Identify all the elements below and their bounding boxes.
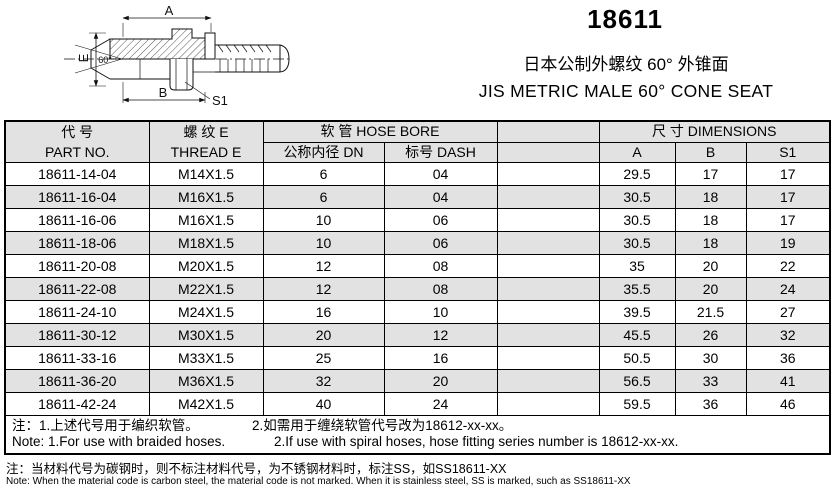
dim-a-cell: 30.5 xyxy=(599,186,675,209)
footnote-english: Note: When the material code is carbon s… xyxy=(6,476,631,487)
ring xyxy=(205,33,215,59)
dim-s1-label: S1 xyxy=(212,93,228,108)
dim-b-cell: 18 xyxy=(675,186,746,209)
col-header-dash: 标号 DASH xyxy=(384,142,497,163)
dash-cell: 06 xyxy=(384,209,497,232)
col-header-thread-cn: 螺 纹 E xyxy=(150,122,263,142)
dash-cell: 20 xyxy=(384,370,497,393)
dn-cell: 40 xyxy=(263,393,384,416)
blank-cell xyxy=(497,370,599,393)
dash-cell: 10 xyxy=(384,301,497,324)
note-row: 注：1.上述代号用于编织软管。 2.如需用于缠绕软管代号改为18612-xx-x… xyxy=(5,416,830,455)
note-en-1: Note: 1.For use with braided hoses. xyxy=(12,434,274,450)
thread-cell: M22X1.5 xyxy=(149,278,263,301)
blank-cell xyxy=(497,255,599,278)
table-row: 18611-36-20M36X1.5322056.53341 xyxy=(5,370,830,393)
col-header-blank-top xyxy=(497,121,599,142)
table-row: 18611-16-06M16X1.5100630.51817 xyxy=(5,209,830,232)
dash-cell: 04 xyxy=(384,163,497,186)
blank-cell xyxy=(497,163,599,186)
dim-a-cell: 50.5 xyxy=(599,347,675,370)
spec-table-header: 代 号 PART NO. 螺 纹 E THREAD E 软 管 HOSE BOR… xyxy=(5,121,830,163)
col-header-dimensions: 尺 寸 DIMENSIONS xyxy=(599,121,830,142)
thread-cell: M42X1.5 xyxy=(149,393,263,416)
dn-cell: 6 xyxy=(263,163,384,186)
table-row: 18611-22-08M22X1.5120835.52024 xyxy=(5,278,830,301)
table-row: 18611-42-24M42X1.5402459.53646 xyxy=(5,393,830,416)
blank-cell xyxy=(497,186,599,209)
blank-cell xyxy=(497,393,599,416)
table-row: 18611-18-06M18X1.5100630.51819 xyxy=(5,232,830,255)
table-row: 18611-16-04M16X1.560430.51817 xyxy=(5,186,830,209)
col-header-blank-bottom xyxy=(497,142,599,163)
thread-cell: M16X1.5 xyxy=(149,186,263,209)
table-row: 18611-20-08M20X1.51208352022 xyxy=(5,255,830,278)
dim-b-cell: 18 xyxy=(675,232,746,255)
dim-s1-cell: 46 xyxy=(746,393,830,416)
part-no-cell: 18611-36-20 xyxy=(5,370,149,393)
thread-cell: M24X1.5 xyxy=(149,301,263,324)
dash-cell: 16 xyxy=(384,347,497,370)
blank-cell xyxy=(497,209,599,232)
dim-s1-cell: 32 xyxy=(746,324,830,347)
spec-table-body: 18611-14-04M14X1.560429.5171718611-16-04… xyxy=(5,163,830,416)
col-header-part-no: 代 号 PART NO. xyxy=(5,121,149,163)
blank-cell xyxy=(497,232,599,255)
dim-b-cell: 17 xyxy=(675,163,746,186)
dim-a-cell: 56.5 xyxy=(599,370,675,393)
dim-s1-cell: 17 xyxy=(746,186,830,209)
col-header-dim-s1: S1 xyxy=(746,142,830,163)
dash-cell: 12 xyxy=(384,324,497,347)
dash-cell: 24 xyxy=(384,393,497,416)
table-row: 18611-24-10M24X1.5161039.521.527 xyxy=(5,301,830,324)
col-header-thread: 螺 纹 E THREAD E xyxy=(149,121,263,163)
subtitle-chinese: 日本公制外螺纹 60° 外锥面 xyxy=(420,50,832,75)
dim-a-cell: 39.5 xyxy=(599,301,675,324)
dim-s1-cell: 24 xyxy=(746,278,830,301)
part-no-cell: 18611-33-16 xyxy=(5,347,149,370)
part-no-cell: 18611-20-08 xyxy=(5,255,149,278)
thread-cell: M36X1.5 xyxy=(149,370,263,393)
thread-section xyxy=(110,29,205,59)
dim-e-label: E xyxy=(76,53,91,62)
series-code-title: 18611 xyxy=(420,4,830,35)
col-header-dn: 公称内径 DN xyxy=(263,142,384,163)
dim-s1-cell: 17 xyxy=(746,209,830,232)
dim-b-cell: 18 xyxy=(675,209,746,232)
dim-b-cell: 36 xyxy=(675,393,746,416)
dash-cell: 08 xyxy=(384,255,497,278)
dash-cell: 06 xyxy=(384,232,497,255)
thread-cell: M20X1.5 xyxy=(149,255,263,278)
dn-cell: 25 xyxy=(263,347,384,370)
dim-b-cell: 26 xyxy=(675,324,746,347)
col-header-part-no-en: PART NO. xyxy=(6,142,149,162)
dim-s1-cell: 36 xyxy=(746,347,830,370)
dim-b-cell: 20 xyxy=(675,255,746,278)
dim-a-cell: 30.5 xyxy=(599,232,675,255)
fitting-technical-drawing: A E 60° B S1 xyxy=(30,2,296,121)
note-cn-2: 2.如需用于缠绕软管代号改为18612-xx-xx。 xyxy=(252,418,512,434)
col-header-dim-a: A xyxy=(599,142,675,163)
spec-table-notes: 注：1.上述代号用于编织软管。 2.如需用于缠绕软管代号改为18612-xx-x… xyxy=(5,416,830,455)
blank-cell xyxy=(497,347,599,370)
dn-cell: 6 xyxy=(263,186,384,209)
col-header-thread-en: THREAD E xyxy=(150,142,263,162)
part-no-cell: 18611-16-04 xyxy=(5,186,149,209)
col-header-hose-bore: 软 管 HOSE BORE xyxy=(263,121,497,142)
dn-cell: 10 xyxy=(263,232,384,255)
part-no-cell: 18611-24-10 xyxy=(5,301,149,324)
dash-cell: 04 xyxy=(384,186,497,209)
dim-a-cell: 29.5 xyxy=(599,163,675,186)
catalog-page: { "page": { "series_code": "18611", "sub… xyxy=(0,0,833,495)
dim-a-cell: 35.5 xyxy=(599,278,675,301)
dn-cell: 20 xyxy=(263,324,384,347)
note-line-en: Note: 1.For use with braided hoses. 2.If… xyxy=(12,434,829,450)
table-row: 18611-14-04M14X1.560429.51717 xyxy=(5,163,830,186)
part-no-cell: 18611-22-08 xyxy=(5,278,149,301)
fitting-drawing-svg: A E 60° B S1 xyxy=(30,2,296,116)
note-cn-1: 注：1.上述代号用于编织软管。 xyxy=(12,418,252,434)
dim-a-label: A xyxy=(165,3,174,18)
thread-cell: M16X1.5 xyxy=(149,209,263,232)
dim-a-cell: 59.5 xyxy=(599,393,675,416)
dim-a-cell: 30.5 xyxy=(599,209,675,232)
dash-cell: 08 xyxy=(384,278,497,301)
part-no-cell: 18611-42-24 xyxy=(5,393,149,416)
table-row: 18611-30-12M30X1.5201245.52632 xyxy=(5,324,830,347)
part-no-cell: 18611-16-06 xyxy=(5,209,149,232)
dim-b-cell: 30 xyxy=(675,347,746,370)
dim-b-label: B xyxy=(159,85,168,100)
dim-s1-cell: 41 xyxy=(746,370,830,393)
dim-s1-cell: 27 xyxy=(746,301,830,324)
dim-s1-cell: 22 xyxy=(746,255,830,278)
dim-s1-cell: 19 xyxy=(746,232,830,255)
table-row: 18611-33-16M33X1.5251650.53036 xyxy=(5,347,830,370)
part-no-cell: 18611-30-12 xyxy=(5,324,149,347)
part-no-cell: 18611-14-04 xyxy=(5,163,149,186)
thread-cell: M18X1.5 xyxy=(149,232,263,255)
spec-table: 代 号 PART NO. 螺 纹 E THREAD E 软 管 HOSE BOR… xyxy=(4,120,831,455)
thread-cell: M33X1.5 xyxy=(149,347,263,370)
dim-b-cell: 20 xyxy=(675,278,746,301)
note-en-2: 2.If use with spiral hoses, hose fitting… xyxy=(274,434,678,450)
dn-cell: 16 xyxy=(263,301,384,324)
dn-cell: 32 xyxy=(263,370,384,393)
dn-cell: 12 xyxy=(263,278,384,301)
blank-cell xyxy=(497,278,599,301)
subtitle-english: JIS METRIC MALE 60° CONE SEAT xyxy=(420,81,832,102)
dim-a-cell: 35 xyxy=(599,255,675,278)
dim-b-cell: 33 xyxy=(675,370,746,393)
dim-b-cell: 21.5 xyxy=(675,301,746,324)
dim-a-cell: 45.5 xyxy=(599,324,675,347)
dn-cell: 10 xyxy=(263,209,384,232)
col-header-dim-b: B xyxy=(675,142,746,163)
footnote-chinese: 注：当材料代号为碳钢时，则不标注材料代号，为不锈钢材料时，标注SS，如SS186… xyxy=(6,458,507,477)
blank-cell xyxy=(497,301,599,324)
col-header-part-no-cn: 代 号 xyxy=(6,122,149,142)
dn-cell: 12 xyxy=(263,255,384,278)
thread-cell: M30X1.5 xyxy=(149,324,263,347)
part-no-cell: 18611-18-06 xyxy=(5,232,149,255)
angle-label: 60° xyxy=(98,55,112,65)
blank-cell xyxy=(497,324,599,347)
note-cell: 注：1.上述代号用于编织软管。 2.如需用于缠绕软管代号改为18612-xx-x… xyxy=(5,416,830,455)
thread-cell: M14X1.5 xyxy=(149,163,263,186)
note-line-cn: 注：1.上述代号用于编织软管。 2.如需用于缠绕软管代号改为18612-xx-x… xyxy=(12,418,829,434)
dim-s1-cell: 17 xyxy=(746,163,830,186)
